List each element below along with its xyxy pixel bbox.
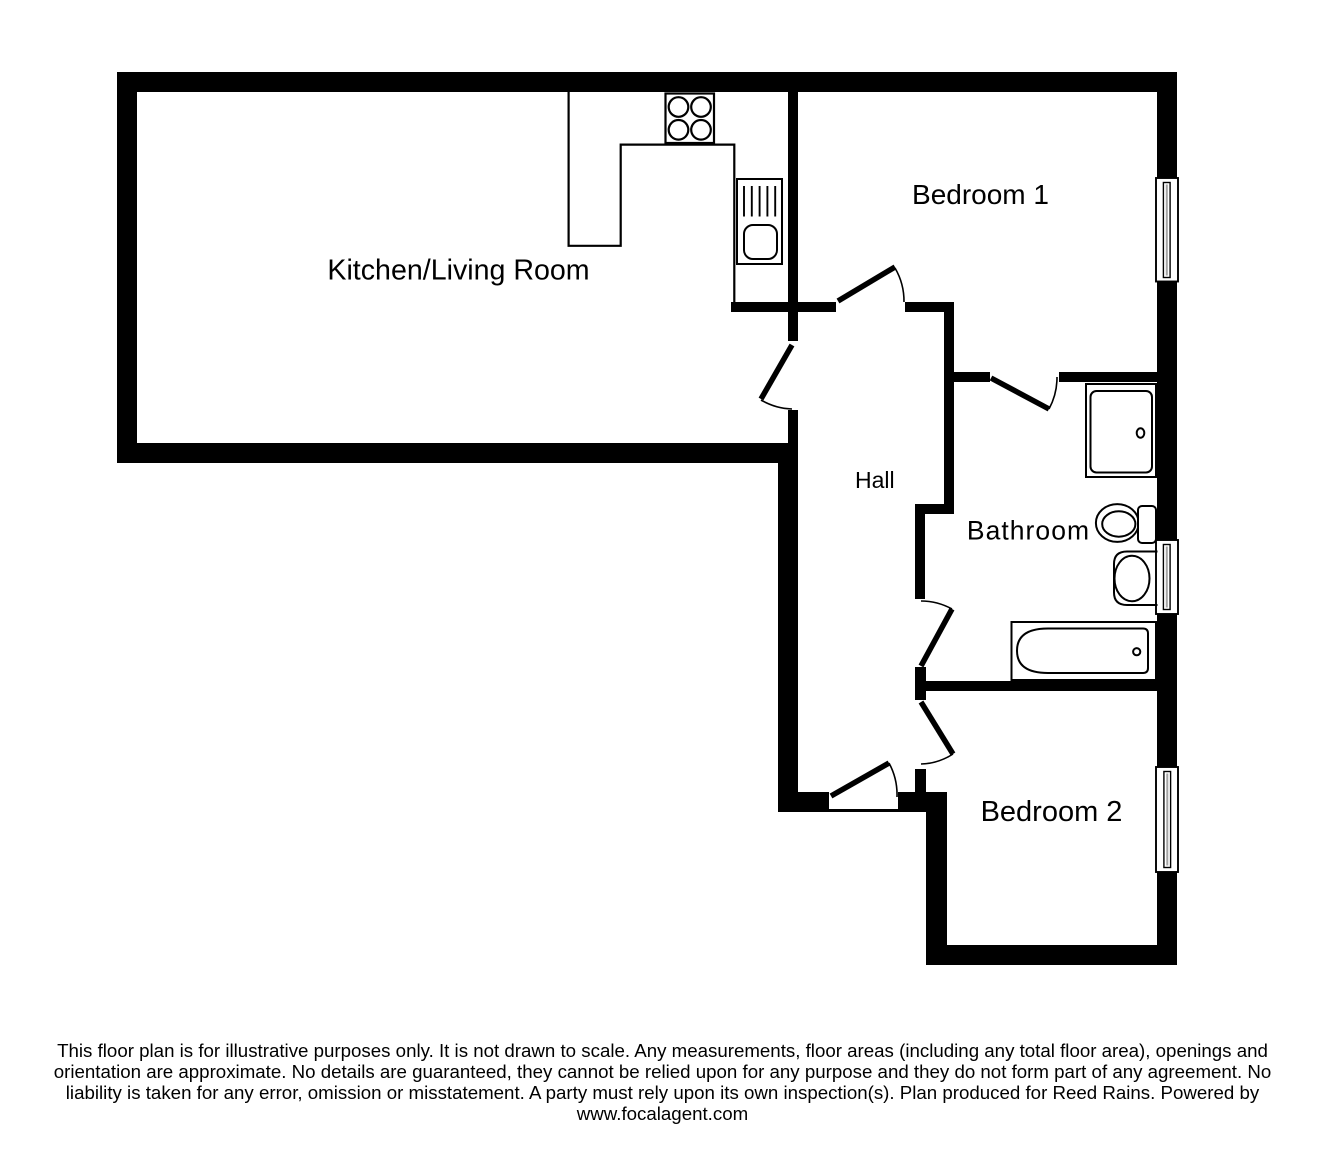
svg-text:This floor plan is for illustr: This floor plan is for illustrative purp… bbox=[57, 1040, 1268, 1061]
svg-text:Kitchen/Living Room: Kitchen/Living Room bbox=[327, 255, 589, 287]
svg-text:Bedroom 2: Bedroom 2 bbox=[981, 796, 1123, 828]
svg-text:liability is taken for any err: liability is taken for any error, omissi… bbox=[66, 1082, 1260, 1103]
svg-text:www.focalagent.com: www.focalagent.com bbox=[576, 1103, 748, 1124]
svg-text:orientation are approximate. N: orientation are approximate. No details … bbox=[54, 1061, 1272, 1082]
svg-text:Bedroom 1: Bedroom 1 bbox=[912, 179, 1049, 210]
svg-text:Hall: Hall bbox=[855, 467, 895, 493]
svg-text:Bathroom: Bathroom bbox=[967, 516, 1090, 546]
